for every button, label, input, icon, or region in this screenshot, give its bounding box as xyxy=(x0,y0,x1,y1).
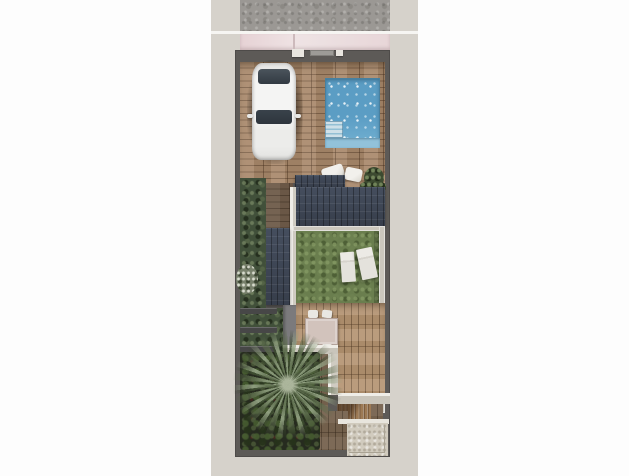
flowering-bush xyxy=(236,264,258,294)
gravel-pad xyxy=(347,423,388,456)
car xyxy=(252,63,296,160)
path-step-1 xyxy=(240,308,277,314)
deck-side-strip xyxy=(266,183,293,228)
pad-inset-line xyxy=(349,425,385,453)
garage-roof xyxy=(265,228,290,305)
sun-lounger-1 xyxy=(340,252,356,283)
car-windshield xyxy=(256,110,292,124)
street-wall-seam xyxy=(293,34,295,50)
gate-latch xyxy=(336,50,343,56)
pool-steps xyxy=(325,121,343,138)
swimming-pool xyxy=(325,78,380,148)
car-mirror-left xyxy=(247,114,253,118)
terrace-wall-lower xyxy=(338,393,390,404)
sidewalk xyxy=(240,0,390,32)
car-mirror-right xyxy=(295,114,301,118)
gate-post xyxy=(292,49,304,57)
gate-panel xyxy=(310,50,334,56)
site-plan-render xyxy=(0,0,629,476)
main-roof xyxy=(293,187,385,226)
lower-terrace xyxy=(338,353,385,395)
porch-roof xyxy=(295,175,345,187)
car-rear-window xyxy=(258,69,290,84)
street-wall-pink xyxy=(240,34,390,50)
dining-chair-1 xyxy=(308,310,318,318)
pool-bench xyxy=(325,138,380,148)
